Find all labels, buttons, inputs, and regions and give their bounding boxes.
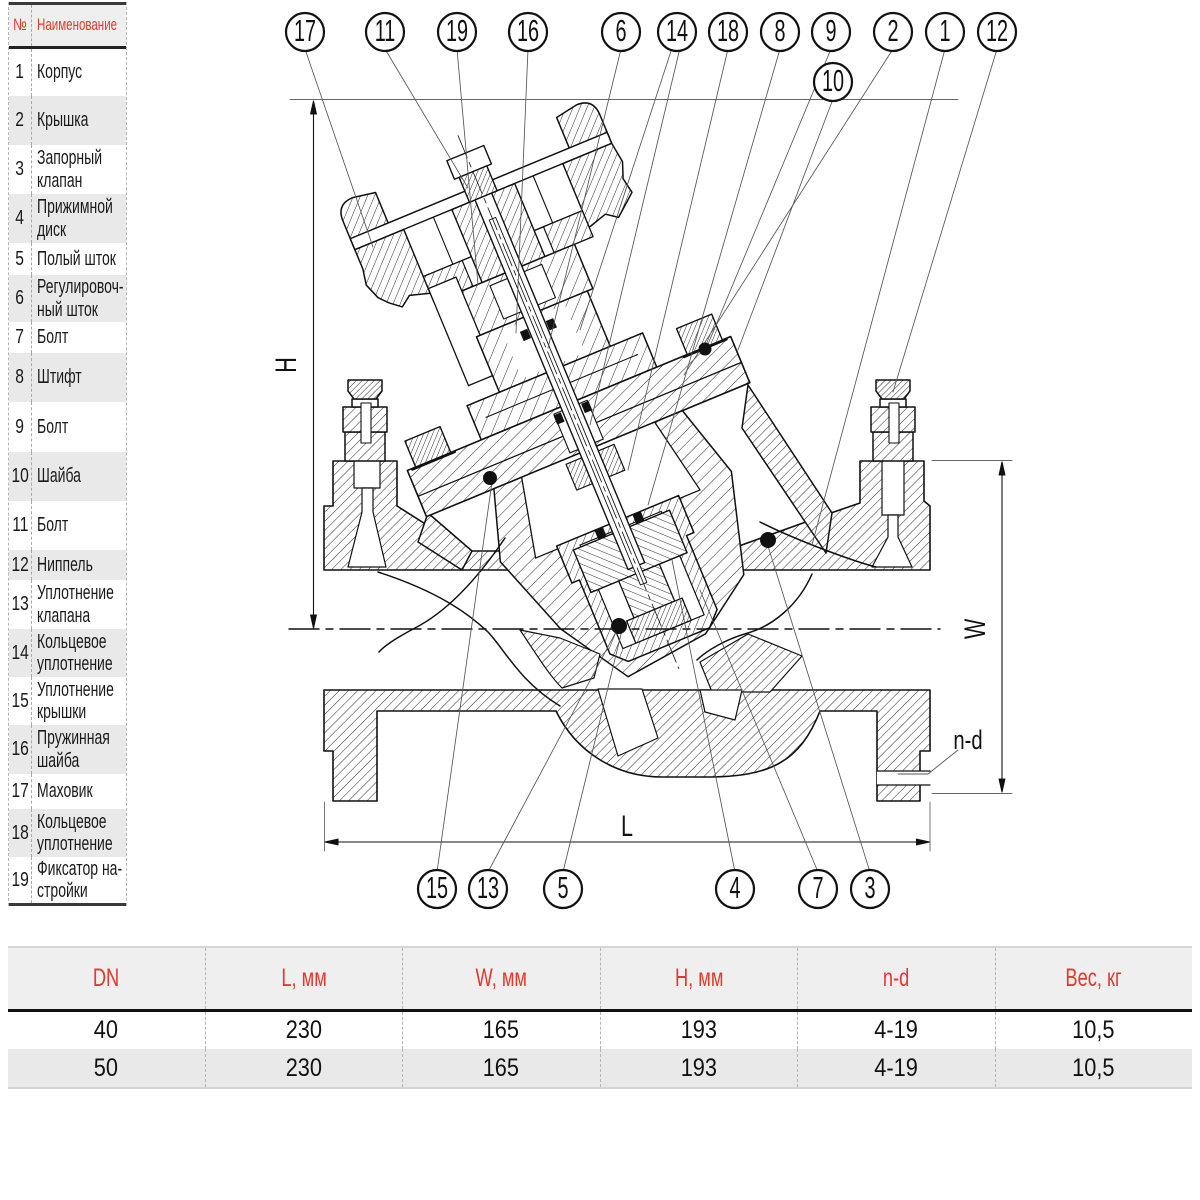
- svg-text:W: W: [957, 619, 991, 640]
- svg-text:9: 9: [825, 12, 836, 48]
- svg-text:10: 10: [822, 62, 844, 98]
- svg-text:8: 8: [774, 12, 785, 48]
- svg-text:2: 2: [887, 12, 898, 48]
- svg-text:18: 18: [717, 12, 739, 48]
- svg-text:12: 12: [986, 12, 1008, 48]
- svg-text:11: 11: [375, 12, 396, 48]
- svg-text:n-d: n-d: [953, 725, 982, 756]
- svg-text:5: 5: [557, 869, 568, 905]
- svg-text:17: 17: [294, 12, 316, 48]
- svg-text:3: 3: [864, 869, 875, 905]
- svg-text:7: 7: [812, 869, 823, 905]
- svg-text:15: 15: [426, 869, 448, 905]
- svg-text:1: 1: [939, 12, 950, 48]
- svg-text:19: 19: [446, 12, 468, 48]
- svg-text:L: L: [621, 808, 633, 842]
- svg-text:13: 13: [477, 869, 499, 905]
- svg-text:H: H: [268, 357, 302, 373]
- svg-text:14: 14: [666, 12, 688, 48]
- svg-text:16: 16: [517, 12, 539, 48]
- svg-text:4: 4: [729, 869, 740, 905]
- svg-text:6: 6: [615, 12, 626, 48]
